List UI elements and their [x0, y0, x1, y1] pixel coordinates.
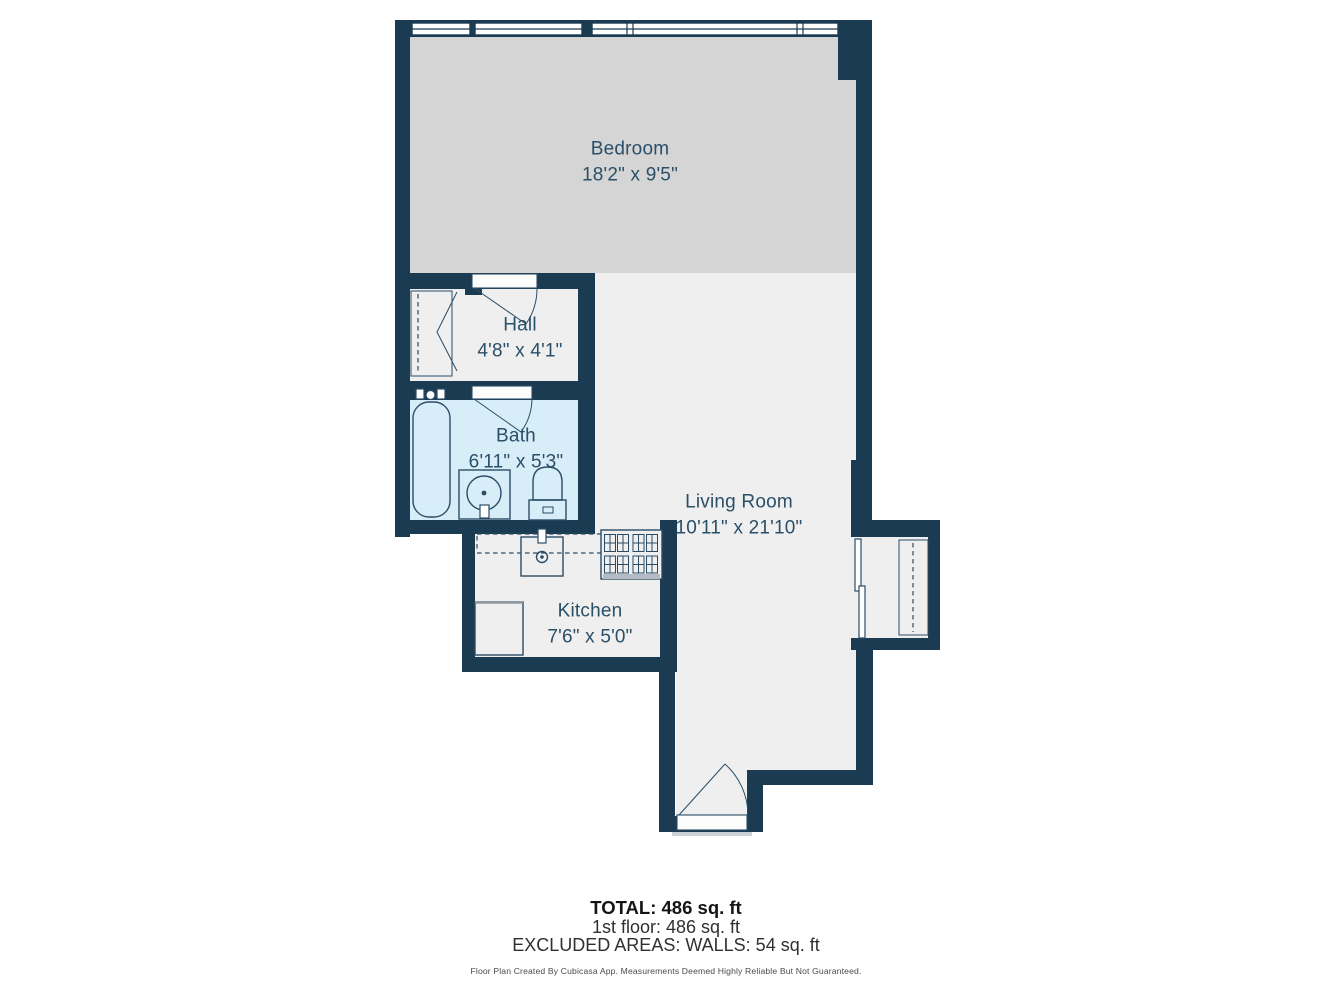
room-name: Kitchen	[547, 599, 632, 625]
room-name: Living Room	[676, 490, 803, 516]
sliding-door-icon	[859, 586, 865, 638]
kitchen-faucet-icon	[538, 529, 546, 543]
room-label-kitchen: Kitchen 7'6" x 5'0"	[547, 599, 632, 650]
tub-shower-control-icon	[426, 391, 435, 400]
floor-plan-page: Bedroom 18'2" x 9'5" Hall 4'8" x 4'1" Ba…	[0, 0, 1333, 1000]
sliding-door-icon	[855, 539, 861, 591]
hall-door-opening	[472, 274, 537, 288]
room-name: Bedroom	[582, 137, 678, 163]
sink-faucet-icon	[480, 505, 489, 518]
entry-threshold	[672, 832, 752, 836]
tub-faucet-icon	[437, 389, 445, 399]
stove-icon	[601, 530, 662, 579]
room-name: Hall	[477, 313, 562, 339]
closet-floor	[857, 537, 928, 638]
bath-door-opening	[472, 386, 532, 399]
kitchen-counter-icon	[475, 602, 523, 655]
room-dimensions: 10'11" x 21'10"	[676, 515, 803, 541]
bedroom-windows	[412, 23, 838, 35]
tub-faucet-icon	[416, 389, 424, 399]
room-label-bath: Bath 6'11" x 5'3"	[469, 424, 564, 475]
disclaimer-text: Floor Plan Created By Cubicasa App. Meas…	[470, 966, 861, 976]
room-dimensions: 18'2" x 9'5"	[582, 162, 678, 188]
room-label-hall: Hall 4'8" x 4'1"	[477, 313, 562, 364]
room-dimensions: 6'11" x 5'3"	[469, 449, 564, 475]
room-name: Bath	[469, 424, 564, 450]
room-label-living-room: Living Room 10'11" x 21'10"	[676, 490, 803, 541]
room-dimensions: 4'8" x 4'1"	[477, 338, 562, 364]
entry-door-opening	[677, 815, 747, 830]
room-label-bedroom: Bedroom 18'2" x 9'5"	[582, 137, 678, 188]
room-dimensions: 7'6" x 5'0"	[547, 624, 632, 650]
excluded-areas-text: EXCLUDED AREAS: WALLS: 54 sq. ft	[512, 935, 819, 956]
